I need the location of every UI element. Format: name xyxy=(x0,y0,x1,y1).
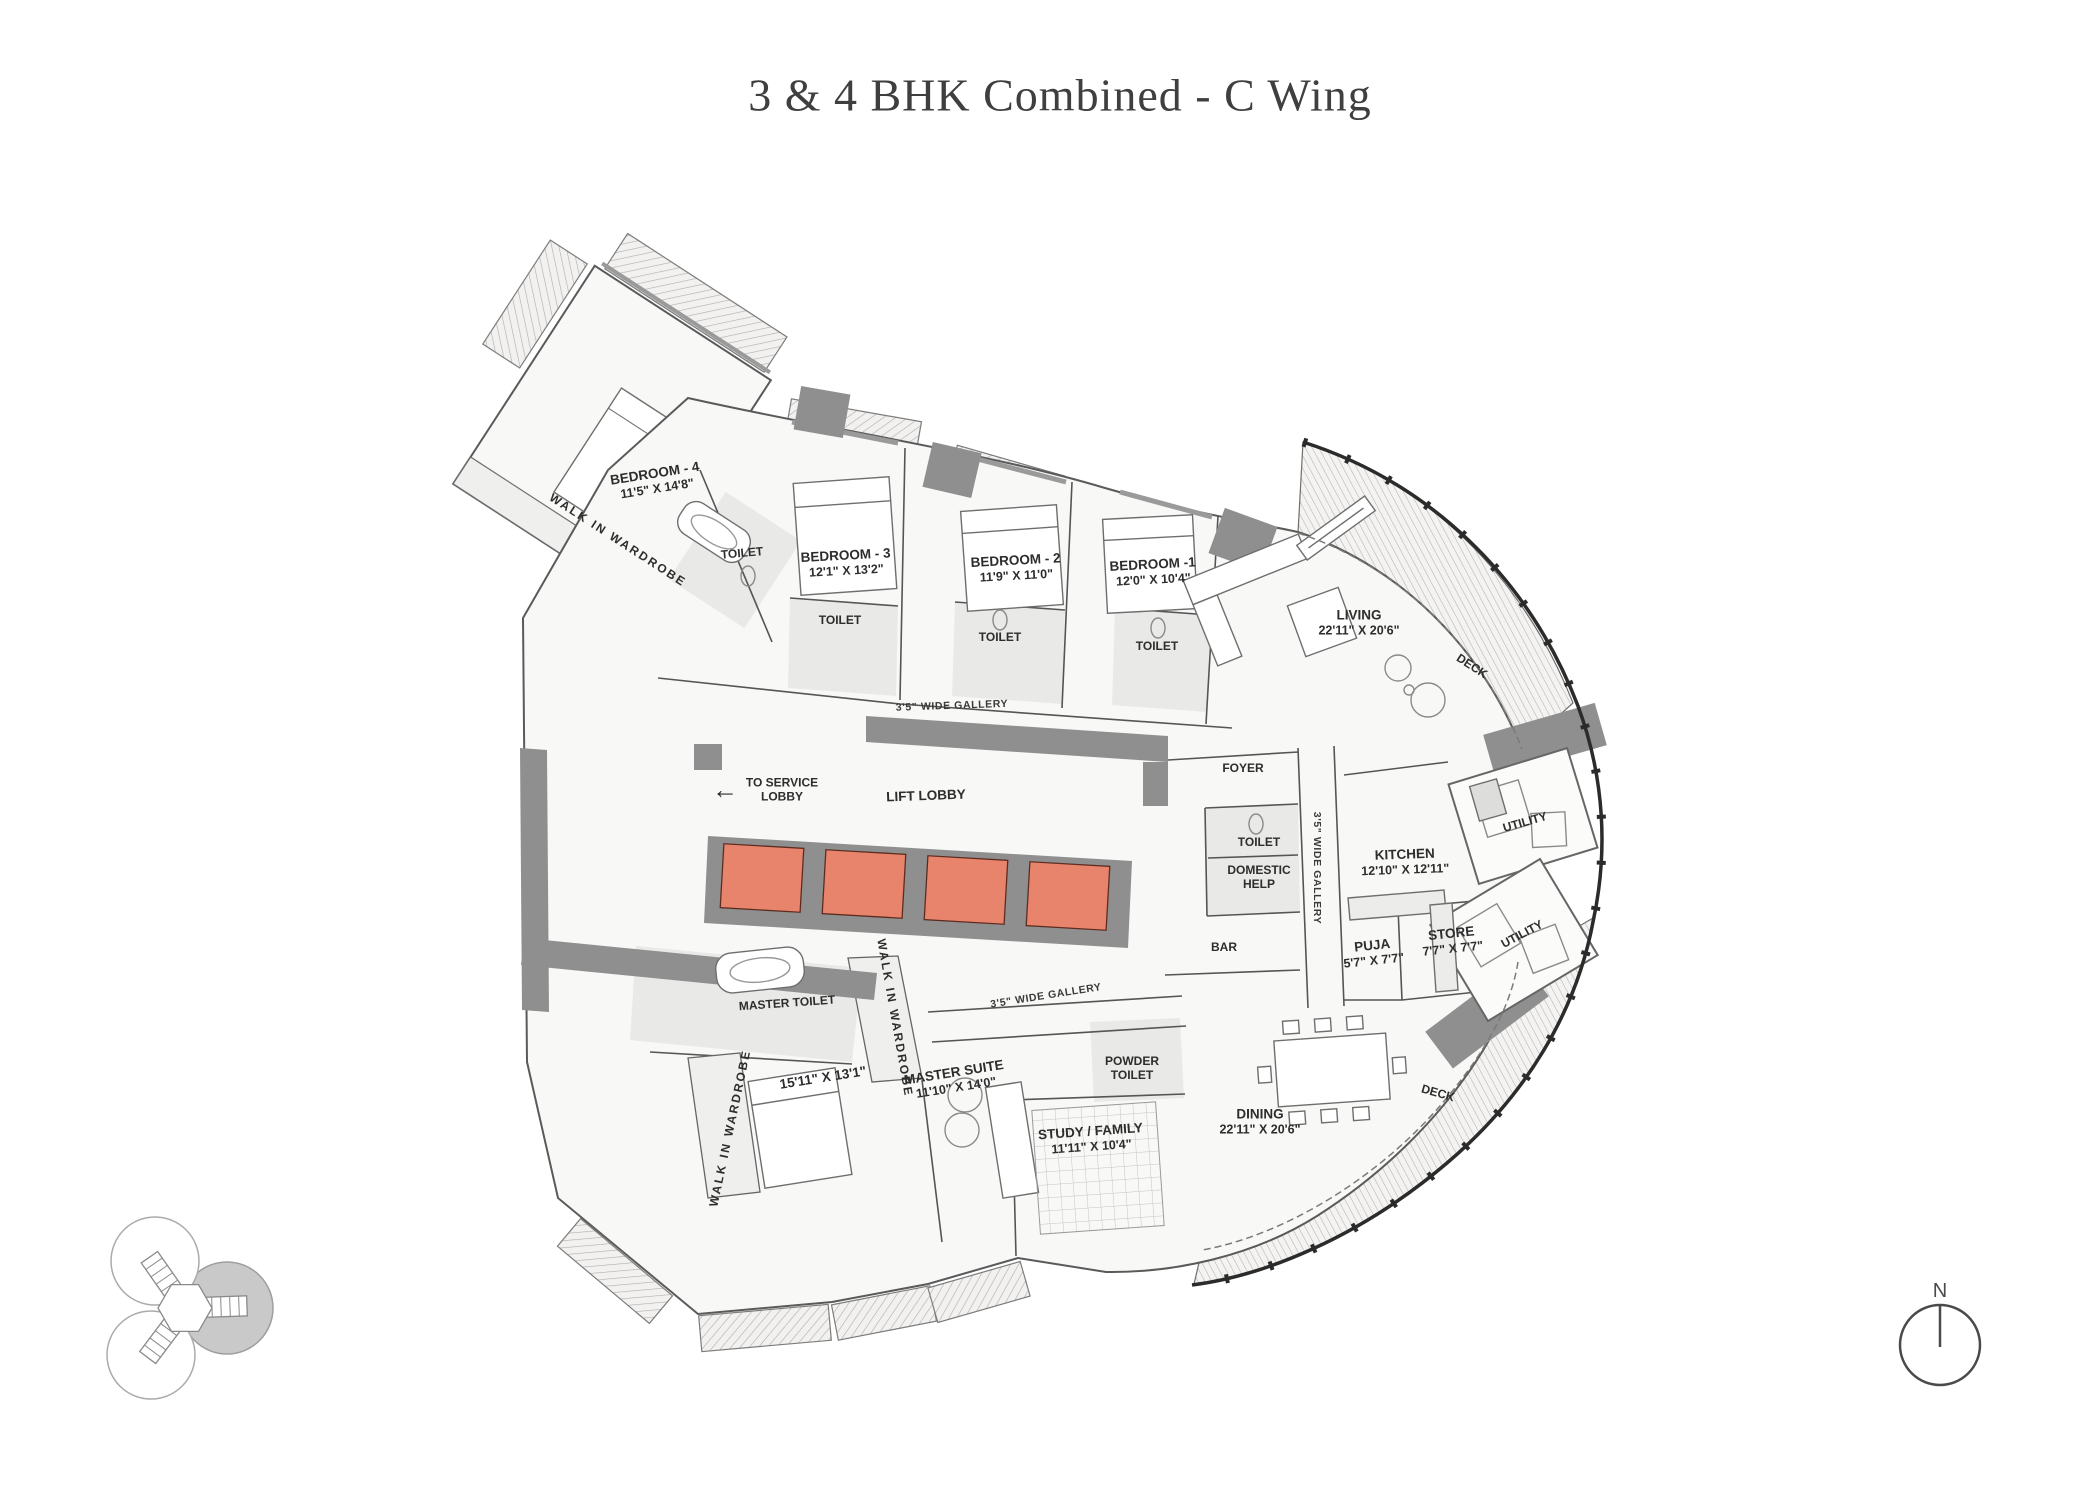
room-label-store: STORE 7'7" X 7'7" xyxy=(1420,923,1484,960)
living-dims: 22'11" X 20'6" xyxy=(1318,624,1399,639)
room-label-puja: PUJA 5'7" X 7'7" xyxy=(1341,935,1405,972)
floor-plan-page: 3 & 4 BHK Combined - C Wing BEDROOM - 4 … xyxy=(0,0,2100,1500)
room-label-living: LIVING 22'11" X 20'6" xyxy=(1318,608,1399,639)
domestic-help-line1: DOMESTIC xyxy=(1227,863,1290,877)
label-lift-lobby: LIFT LOBBY xyxy=(886,787,966,806)
label-to-service-lobby: ← TO SERVICE LOBBY xyxy=(712,776,818,805)
room-label-powder-toilet: POWDER TOILET xyxy=(1105,1054,1159,1082)
room-label-toilet-bedroom1: TOILET xyxy=(1136,639,1178,653)
north-compass-icon xyxy=(1900,1305,1980,1385)
domestic-help-line2: HELP xyxy=(1243,877,1275,891)
lift-3 xyxy=(924,856,1008,924)
room-label-bedroom-3: BEDROOM - 3 12'1" X 13'2" xyxy=(800,545,891,580)
key-plan xyxy=(107,1217,273,1399)
floor-plan-drawing xyxy=(0,0,2100,1500)
to-service-lobby-line1: TO SERVICE xyxy=(746,776,818,790)
room-label-kitchen: KITCHEN 12'10" X 12'11" xyxy=(1360,845,1449,879)
study-rug xyxy=(1032,1102,1164,1234)
to-service-lobby-line2: LOBBY xyxy=(761,790,803,804)
lift-1 xyxy=(720,844,804,912)
room-label-toilet-bedroom3: TOILET xyxy=(819,613,861,627)
room-label-bar: BAR xyxy=(1211,940,1237,954)
room-label-bedroom-2: BEDROOM - 2 11'9" X 11'0" xyxy=(970,550,1061,585)
room-label-toilet-domestic: TOILET xyxy=(1238,835,1280,849)
page-title: 3 & 4 BHK Combined - C Wing xyxy=(748,69,1372,122)
living-name: LIVING xyxy=(1336,608,1381,624)
room-label-bedroom-1: BEDROOM -1 12'0" X 10'4" xyxy=(1109,554,1197,589)
room-label-foyer: FOYER xyxy=(1222,761,1263,775)
left-arrow-icon: ← xyxy=(712,777,738,803)
kitchen-dims: 12'10" X 12'11" xyxy=(1361,861,1449,879)
label-wide-gallery-vertical: 3'5" WIDE GALLERY xyxy=(1311,812,1323,924)
room-label-toilet-bedroom2: TOILET xyxy=(979,630,1021,644)
lift-2 xyxy=(822,850,906,918)
room-label-domestic-help: DOMESTIC HELP xyxy=(1227,863,1290,891)
dining-dims: 22'11" X 20'6" xyxy=(1219,1123,1300,1138)
lift-4 xyxy=(1026,862,1110,930)
powder-toilet-line1: POWDER xyxy=(1105,1054,1159,1068)
powder-toilet-line2: TOILET xyxy=(1111,1068,1153,1082)
bathtub-master xyxy=(714,946,806,995)
dining-name: DINING xyxy=(1236,1107,1283,1123)
room-label-dining: DINING 22'11" X 20'6" xyxy=(1219,1107,1300,1138)
north-label: N xyxy=(1933,1280,1947,1304)
